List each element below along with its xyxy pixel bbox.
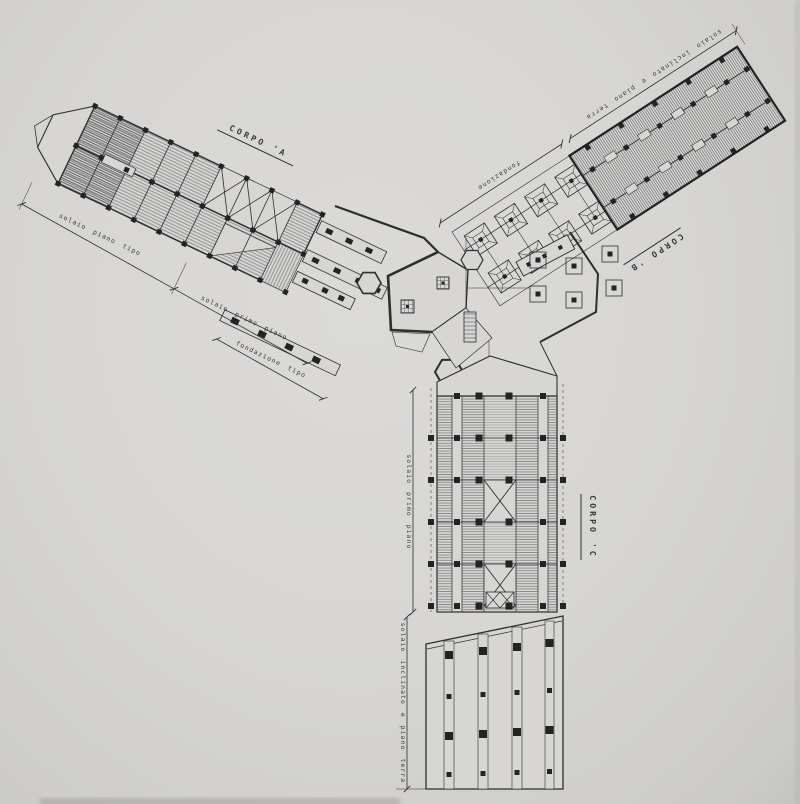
floor-plan-drawing: solaio piano tipo solaio primo piano fon… [0,0,800,804]
corpo-b-title: CORPO 'B [624,228,688,276]
label-corpo-b: CORPO 'B [627,232,686,275]
corpo-c-wing: solaio primo piano solaio inclinato e pi… [396,356,598,792]
photo-edge-right [795,0,800,804]
label-corpo-c: CORPO 'C [588,495,598,558]
corpo-b-wing: fondazione solaio inclinato e piano terr… [431,19,800,349]
corpo-a-title: CORPO 'A [217,118,298,166]
plan-photograph: solaio piano tipo solaio primo piano fon… [0,0,800,804]
dim-label-solaio-primo-piano: solaio primo piano [200,294,289,342]
dim-label-fondazione: fondazione [476,159,522,193]
dim-label-solaio-primo-piano-c: solaio primo piano [405,454,413,549]
corpo-c-dimension-lines: solaio primo piano solaio inclinato e pi… [396,387,426,792]
dim-label-solaio-inclinato-c: solaio inclinato e piano terra [399,623,407,783]
corpo-c-title: CORPO 'C [581,494,598,560]
corpo-a-wing: solaio piano tipo solaio primo piano fon… [0,84,405,406]
corpo-c-lower-block [426,616,563,789]
photo-edge-shadow [40,798,400,804]
corpo-b-slab [569,47,785,230]
label-corpo-a: CORPO 'A [228,122,290,158]
